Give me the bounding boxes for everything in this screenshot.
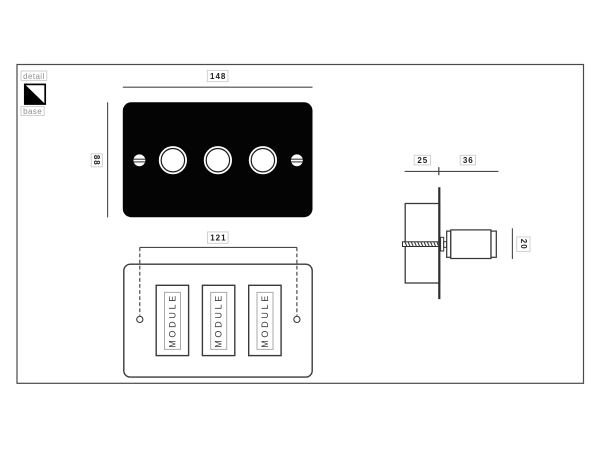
svg-text:88: 88 [92, 155, 101, 166]
svg-text:MODULE: MODULE [214, 293, 224, 348]
svg-text:36: 36 [463, 156, 474, 165]
svg-text:121: 121 [210, 234, 226, 243]
svg-text:MODULE: MODULE [260, 293, 270, 348]
svg-text:25: 25 [417, 156, 428, 165]
svg-text:148: 148 [210, 72, 226, 81]
svg-text:base: base [23, 107, 42, 116]
svg-text:20: 20 [519, 239, 528, 250]
svg-text:detail: detail [23, 72, 45, 81]
svg-text:MODULE: MODULE [167, 293, 177, 348]
